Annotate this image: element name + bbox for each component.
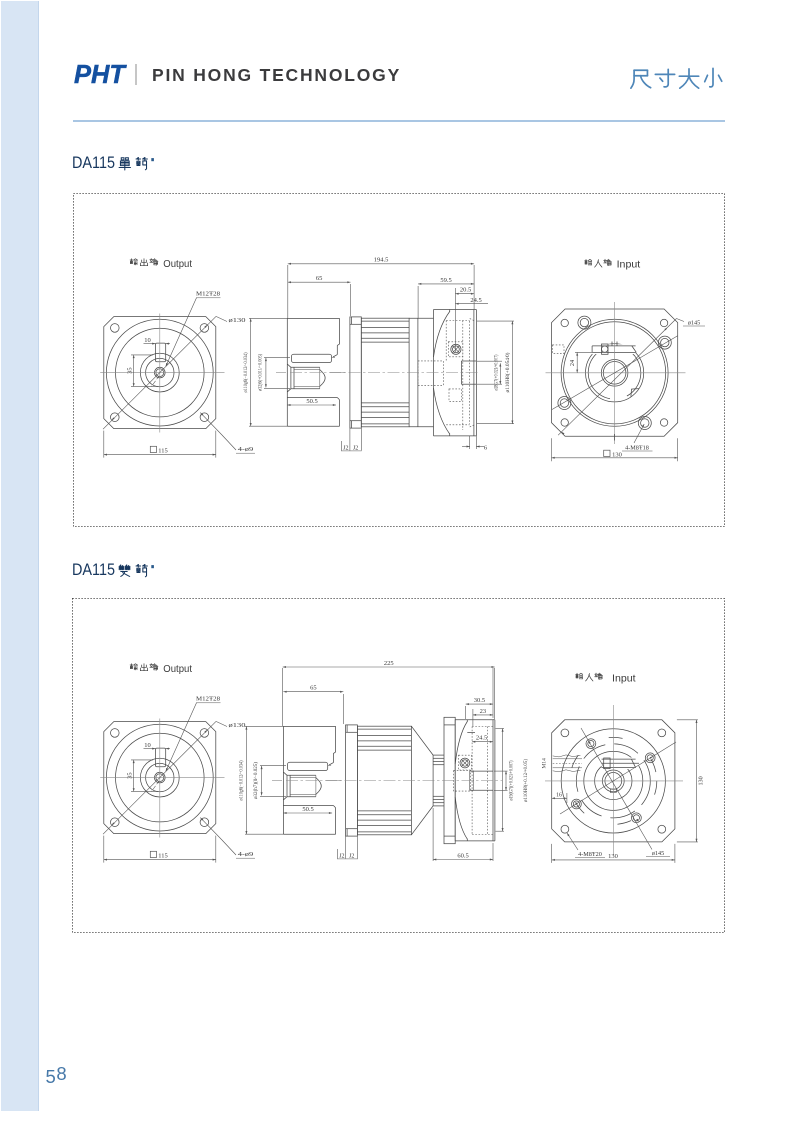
svg-text:ø110H8(+0.12∕+0.05): ø110H8(+0.12∕+0.05) — [523, 759, 529, 802]
svg-text:ø110H8(+0.054∕0): ø110H8(+0.054∕0) — [505, 352, 511, 392]
svg-text:24.5: 24.5 — [470, 297, 481, 304]
svg-text:ø145: ø145 — [688, 320, 700, 327]
svg-text:65: 65 — [316, 275, 323, 282]
svg-text:ø32j6(+0.011∕−0.005): ø32j6(+0.011∕−0.005) — [257, 354, 263, 391]
svg-text:50.5: 50.5 — [306, 398, 317, 405]
svg-text:115: 115 — [158, 853, 168, 860]
svg-text:4-M8Ŧ18: 4-M8Ŧ18 — [625, 445, 649, 452]
svg-text:130: 130 — [608, 853, 618, 860]
svg-text:6: 6 — [484, 445, 488, 452]
svg-text:194.5: 194.5 — [374, 257, 389, 264]
svg-text:130: 130 — [698, 776, 705, 785]
svg-text:ø32(h7)(0∕−0.025): ø32(h7)(0∕−0.025) — [253, 762, 259, 799]
svg-text:50.5: 50.5 — [302, 806, 313, 813]
svg-text:24.5: 24.5 — [476, 735, 487, 742]
svg-text:ø28G7(+0.021∕+0.007): ø28G7(+0.021∕+0.007) — [493, 354, 499, 390]
svg-text:ø19(G7)(+0.021∕+0.007): ø19(G7)(+0.021∕+0.007) — [509, 760, 515, 800]
svg-text:20.5: 20.5 — [460, 287, 471, 294]
svg-text:Output: Output — [163, 258, 192, 270]
svg-text:35: 35 — [127, 772, 134, 779]
svg-text:23: 23 — [480, 708, 487, 715]
svg-text:ø130: ø130 — [229, 722, 246, 729]
svg-text:65: 65 — [310, 685, 317, 692]
svg-text:M12Ŧ28: M12Ŧ28 — [196, 696, 220, 703]
svg-text:10: 10 — [144, 337, 151, 344]
svg-text:ø130: ø130 — [229, 317, 246, 324]
svg-text:24: 24 — [569, 360, 576, 366]
svg-text:10: 10 — [144, 742, 151, 749]
svg-text:16: 16 — [556, 792, 562, 798]
svg-text:ø110g6(−0.012∕−0.034): ø110g6(−0.012∕−0.034) — [243, 352, 249, 392]
svg-text:4-M8Ŧ20: 4-M8Ŧ20 — [578, 851, 602, 858]
svg-text:30.5: 30.5 — [474, 697, 485, 704]
svg-text:35: 35 — [127, 367, 134, 374]
svg-text:Input: Input — [612, 674, 636, 685]
svg-text:4-ø9: 4-ø9 — [238, 446, 254, 453]
svg-text:225: 225 — [384, 660, 394, 667]
svg-text:M14: M14 — [541, 758, 547, 769]
svg-text:60.5: 60.5 — [457, 852, 468, 859]
svg-text:ø110g6(−0.012∕−0.034): ø110g6(−0.012∕−0.034) — [239, 760, 245, 800]
svg-text:ø145: ø145 — [652, 850, 664, 857]
svg-text:59.5: 59.5 — [440, 277, 451, 284]
svg-text:115: 115 — [158, 448, 168, 455]
svg-text:Input: Input — [617, 260, 641, 271]
svg-text:Output: Output — [163, 663, 192, 675]
svg-text:4-ø9: 4-ø9 — [238, 851, 254, 858]
svg-text:130: 130 — [612, 452, 622, 459]
svg-text:M12Ŧ28: M12Ŧ28 — [196, 291, 220, 298]
